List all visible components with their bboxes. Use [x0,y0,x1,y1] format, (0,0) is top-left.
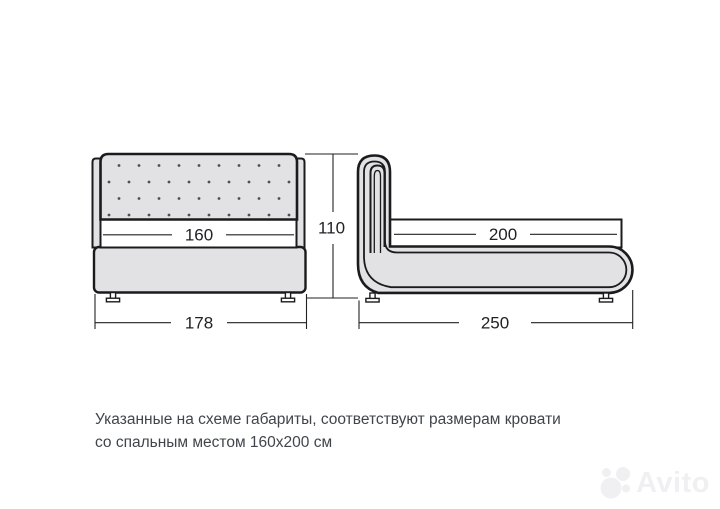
bed-dimension-diagram: 160 [0,0,720,509]
caption-line-1: Указанные на схеме габариты, соответству… [95,409,561,432]
bed-side-view: 200 [358,156,632,303]
caption: Указанные на схеме габариты, соответству… [95,409,561,454]
dim-160-label: 160 [185,226,213,245]
avito-watermark: Avito [597,466,710,500]
tufted-headboard [101,154,298,220]
dim-250-label: 250 [481,314,509,333]
front-left-leg [106,293,119,302]
caption-line-2: со спальным местом 160х200 см [95,432,561,455]
dim-178-label: 178 [185,314,213,333]
bed-front-view: 160 [93,154,306,302]
dimension-height: 110 [305,154,358,298]
side-rear-leg [599,293,612,302]
front-base [94,247,306,293]
avito-logo-icon [597,466,631,500]
dimension-overall-width: 178 [95,294,307,333]
side-front-leg [366,293,379,302]
front-right-leg [281,293,294,302]
watermark-brand-text: Avito [636,467,710,500]
dimension-overall-length: 250 [359,290,633,333]
dim-110-label: 110 [318,219,345,238]
dim-200-label: 200 [489,225,517,244]
